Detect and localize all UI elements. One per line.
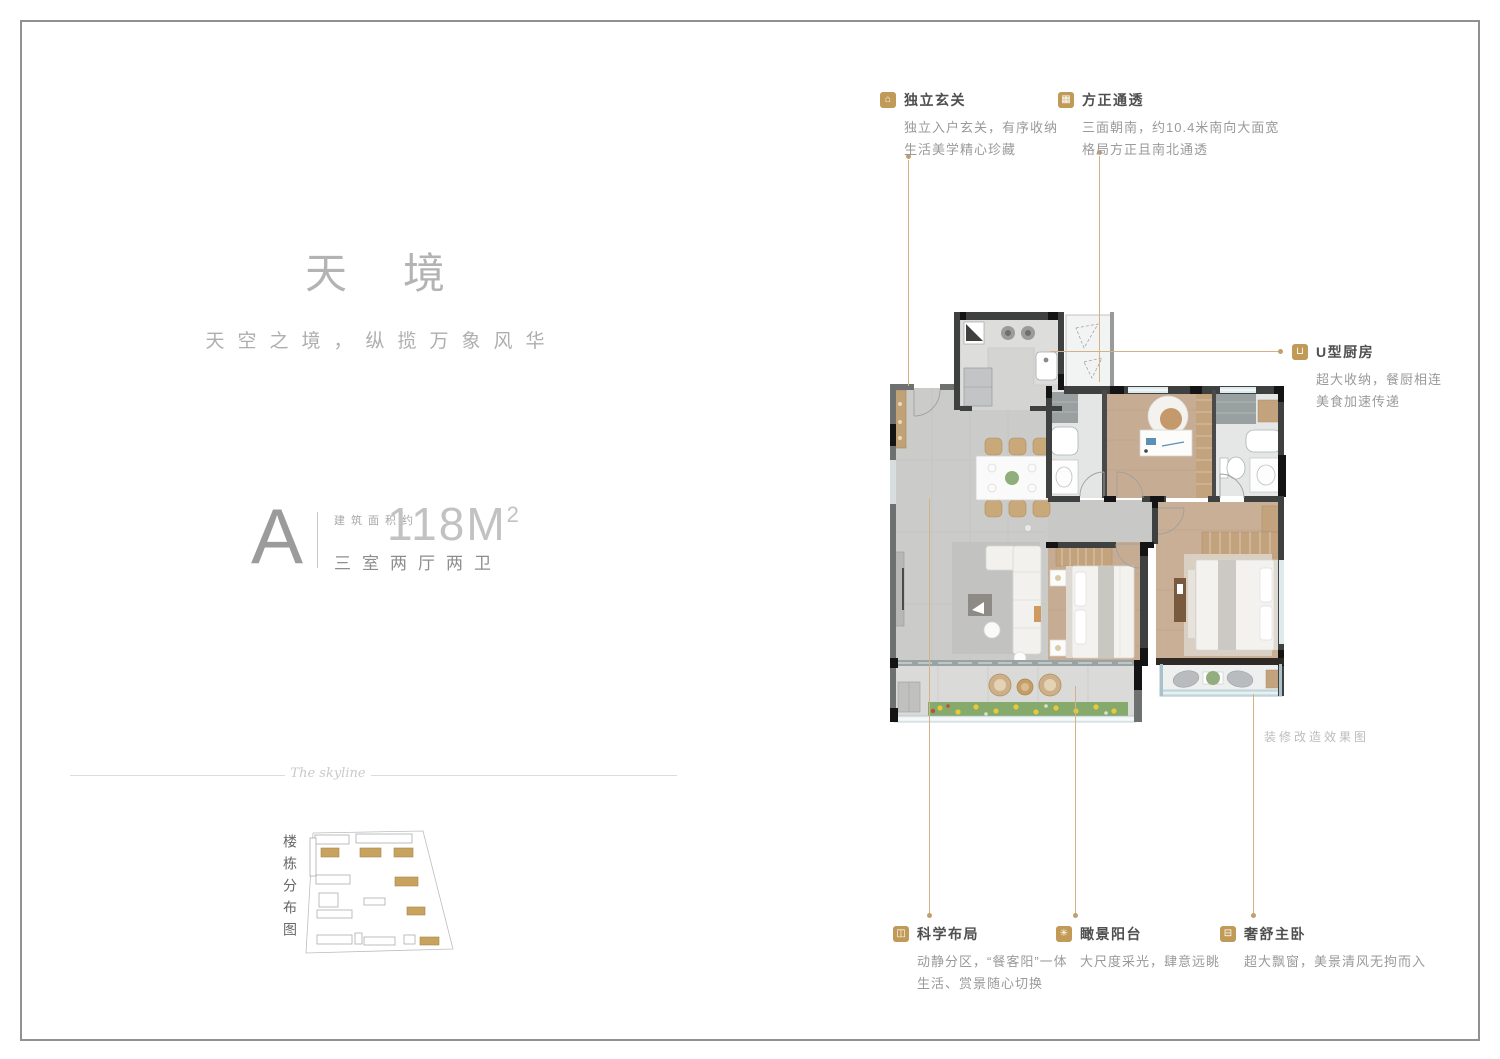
leader-balcony (1075, 686, 1076, 914)
vanity (1250, 458, 1282, 492)
table-plant (1005, 471, 1019, 485)
callout-master-desc1: 超大飘窗，美景清风无拘而入 (1244, 951, 1426, 973)
callout-entry-title: 独立玄关 (904, 90, 966, 110)
shower (1216, 392, 1256, 424)
laptop (1146, 438, 1156, 445)
master-icon: ⊟ (1220, 926, 1236, 942)
leader-kitchen (1050, 351, 1283, 352)
site-map-sketch (303, 830, 463, 962)
unit-room-layout: 三室两厅两卫 (334, 549, 502, 574)
leader-square (1099, 156, 1100, 382)
callout-master-title: 奢舒主卧 (1244, 924, 1306, 944)
leader-layout-dot (927, 913, 932, 918)
divider-script-text: The skyline (285, 766, 371, 781)
square-icon: ▦ (1058, 92, 1074, 108)
callout-kitchen: ⊔ U型厨房 超大收纳，餐厨相连 美食加速传递 (1292, 342, 1442, 413)
callout-entry-desc1: 独立入户玄关，有序收纳 (904, 117, 1058, 139)
callout-layout-title: 科学布局 (917, 924, 979, 944)
unit-area-value: 118M2 (387, 497, 521, 551)
entry-icon: ⌂ (880, 92, 896, 108)
callout-square: ▦ 方正通透 三面朝南，约10.4米南向大面宽 格局方正且南北通透 (1058, 90, 1279, 161)
callout-balcony-title: 瞰景阳台 (1080, 924, 1142, 944)
plan-note: 装修改造效果图 (1264, 728, 1369, 745)
section-divider (70, 775, 677, 776)
leader-balcony-dot (1073, 913, 1078, 918)
floor-lamp (1025, 525, 1032, 532)
wardrobe (1056, 546, 1112, 566)
callout-entry: ⌂ 独立玄关 独立入户玄关，有序收纳 生活美学精心珍藏 (880, 90, 1058, 161)
callout-master: ⊟ 奢舒主卧 超大飘窗，美景清风无拘而入 (1220, 924, 1426, 973)
unit-area-sup: 2 (507, 502, 521, 527)
bathtub (1051, 427, 1078, 455)
leader-master-dot (1251, 913, 1256, 918)
callout-kitchen-desc2: 美食加速传递 (1316, 391, 1442, 413)
bench (1188, 570, 1195, 638)
unit-letter: A (251, 500, 303, 572)
leader-kitchen-dot (1278, 349, 1283, 354)
page-subtitle: 天空之境，纵揽万象风华 (170, 326, 580, 353)
dining-area (976, 438, 1050, 517)
unit-area-number: 118M (387, 498, 507, 550)
callout-square-title: 方正通透 (1082, 90, 1144, 110)
pouf (984, 622, 1000, 638)
brochure-page: 天境 天空之境，纵揽万象风华 A 建筑面积约 118M2 三室两厅两卫 The … (0, 0, 1500, 1059)
leader-layout (929, 498, 930, 914)
callout-kitchen-desc1: 超大收纳，餐厨相连 (1316, 369, 1442, 391)
callout-balcony: ✳ 瞰景阳台 大尺度采光，肆意远眺 (1056, 924, 1220, 973)
layout-icon: ◫ (893, 926, 909, 942)
sofa-cushion (1034, 606, 1041, 622)
callout-square-desc1: 三面朝南，约10.4米南向大面宽 (1082, 117, 1279, 139)
unit-divider (317, 512, 318, 568)
callout-entry-desc2: 生活美学精心珍藏 (904, 139, 1058, 161)
bathtub (1246, 430, 1282, 452)
sitemap-label: 楼栋分布图 (280, 834, 300, 944)
callout-layout: ◫ 科学布局 动静分区，“餐客阳”一体 生活、赏景随心切换 (893, 924, 1068, 995)
balcony-icon: ✳ (1056, 926, 1072, 942)
tv (902, 568, 904, 610)
kitchen-icon: ⊔ (1292, 344, 1308, 360)
callout-layout-desc1: 动静分区，“餐客阳”一体 (917, 951, 1068, 973)
page-title: 天境 (222, 240, 528, 301)
callout-kitchen-title: U型厨房 (1316, 342, 1374, 362)
floor-plan (888, 310, 1294, 726)
leader-master (1253, 694, 1254, 914)
callout-balcony-desc1: 大尺度采光，肆意远眺 (1080, 951, 1220, 973)
callout-layout-desc2: 生活、赏景随心切换 (917, 973, 1068, 995)
leader-entry (908, 160, 909, 386)
vanity (1050, 460, 1078, 494)
callout-square-desc2: 格局方正且南北通透 (1082, 139, 1279, 161)
plant (1206, 671, 1220, 685)
